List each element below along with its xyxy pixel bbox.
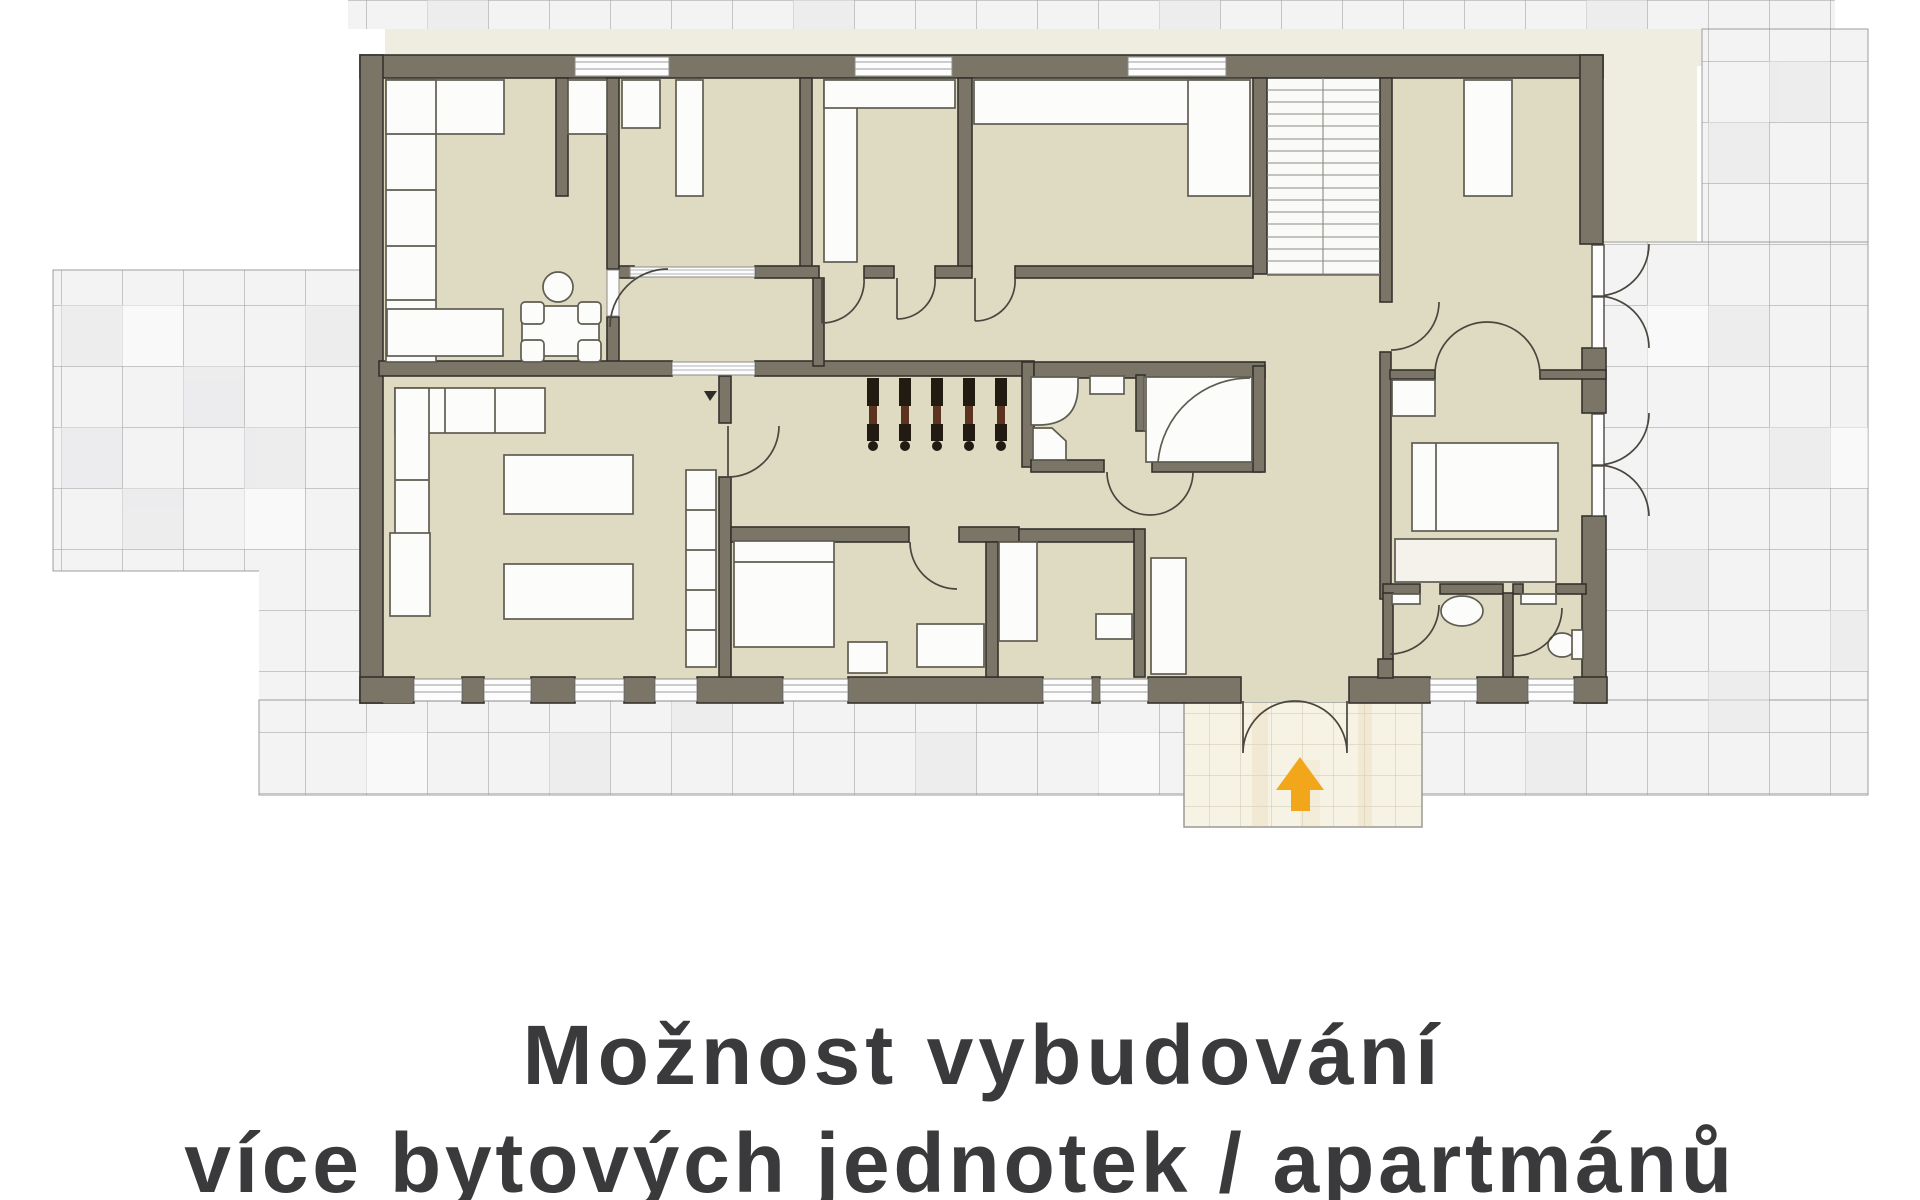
svg-text:více bytových jednotek / apart: více bytových jednotek / apartmánů <box>184 1116 1736 1200</box>
svg-text:Možnost vybudování: Možnost vybudování <box>523 1008 1444 1102</box>
